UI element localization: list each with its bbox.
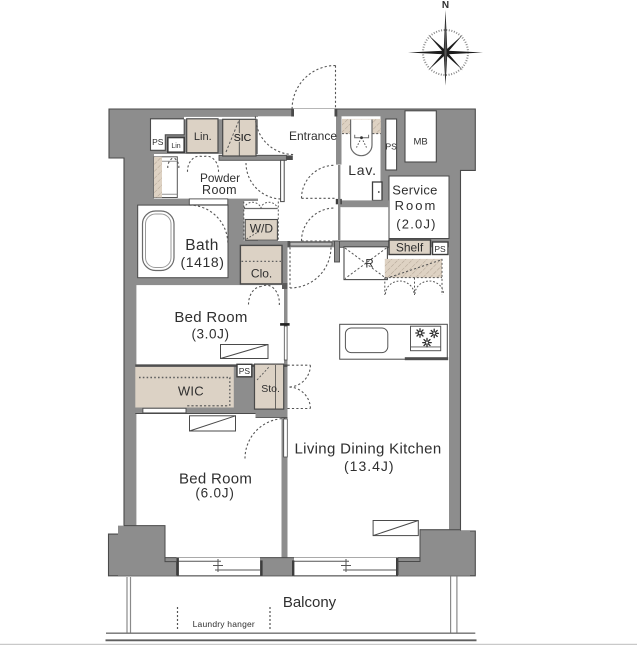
svg-text:WIC: WIC <box>178 383 204 398</box>
svg-text:Clo.: Clo. <box>251 266 272 280</box>
svg-text:Laundry hanger: Laundry hanger <box>193 619 255 629</box>
svg-text:Balcony: Balcony <box>283 594 337 611</box>
svg-text:(3.0J): (3.0J) <box>191 327 229 342</box>
svg-text:Lin: Lin <box>171 143 180 150</box>
svg-text:Room: Room <box>202 183 237 197</box>
svg-text:PS: PS <box>434 244 446 254</box>
svg-text:(1418): (1418) <box>180 254 224 270</box>
svg-text:MB: MB <box>413 137 427 148</box>
svg-text:Lin.: Lin. <box>194 131 212 143</box>
svg-text:Shelf: Shelf <box>396 241 424 255</box>
svg-text:R: R <box>365 259 373 271</box>
svg-text:PS: PS <box>152 137 164 147</box>
svg-text:Room: Room <box>395 198 438 213</box>
svg-text:Living Dining Kitchen: Living Dining Kitchen <box>294 440 441 457</box>
svg-text:W/D: W/D <box>250 221 274 235</box>
svg-text:Service: Service <box>392 183 437 198</box>
svg-text:Bed Room: Bed Room <box>174 309 247 326</box>
svg-text:PS: PS <box>386 142 398 152</box>
svg-text:Entrance: Entrance <box>289 129 337 143</box>
svg-text:N: N <box>442 0 449 11</box>
svg-text:(2.0J): (2.0J) <box>396 217 436 232</box>
svg-text:PS: PS <box>239 366 251 376</box>
svg-text:Sto.: Sto. <box>261 383 280 395</box>
svg-text:(13.4J): (13.4J) <box>344 458 395 474</box>
svg-text:Bath: Bath <box>185 237 219 254</box>
svg-text:Lav.: Lav. <box>348 162 377 178</box>
svg-text:(6.0J): (6.0J) <box>195 485 234 500</box>
svg-text:SIC: SIC <box>234 132 252 144</box>
